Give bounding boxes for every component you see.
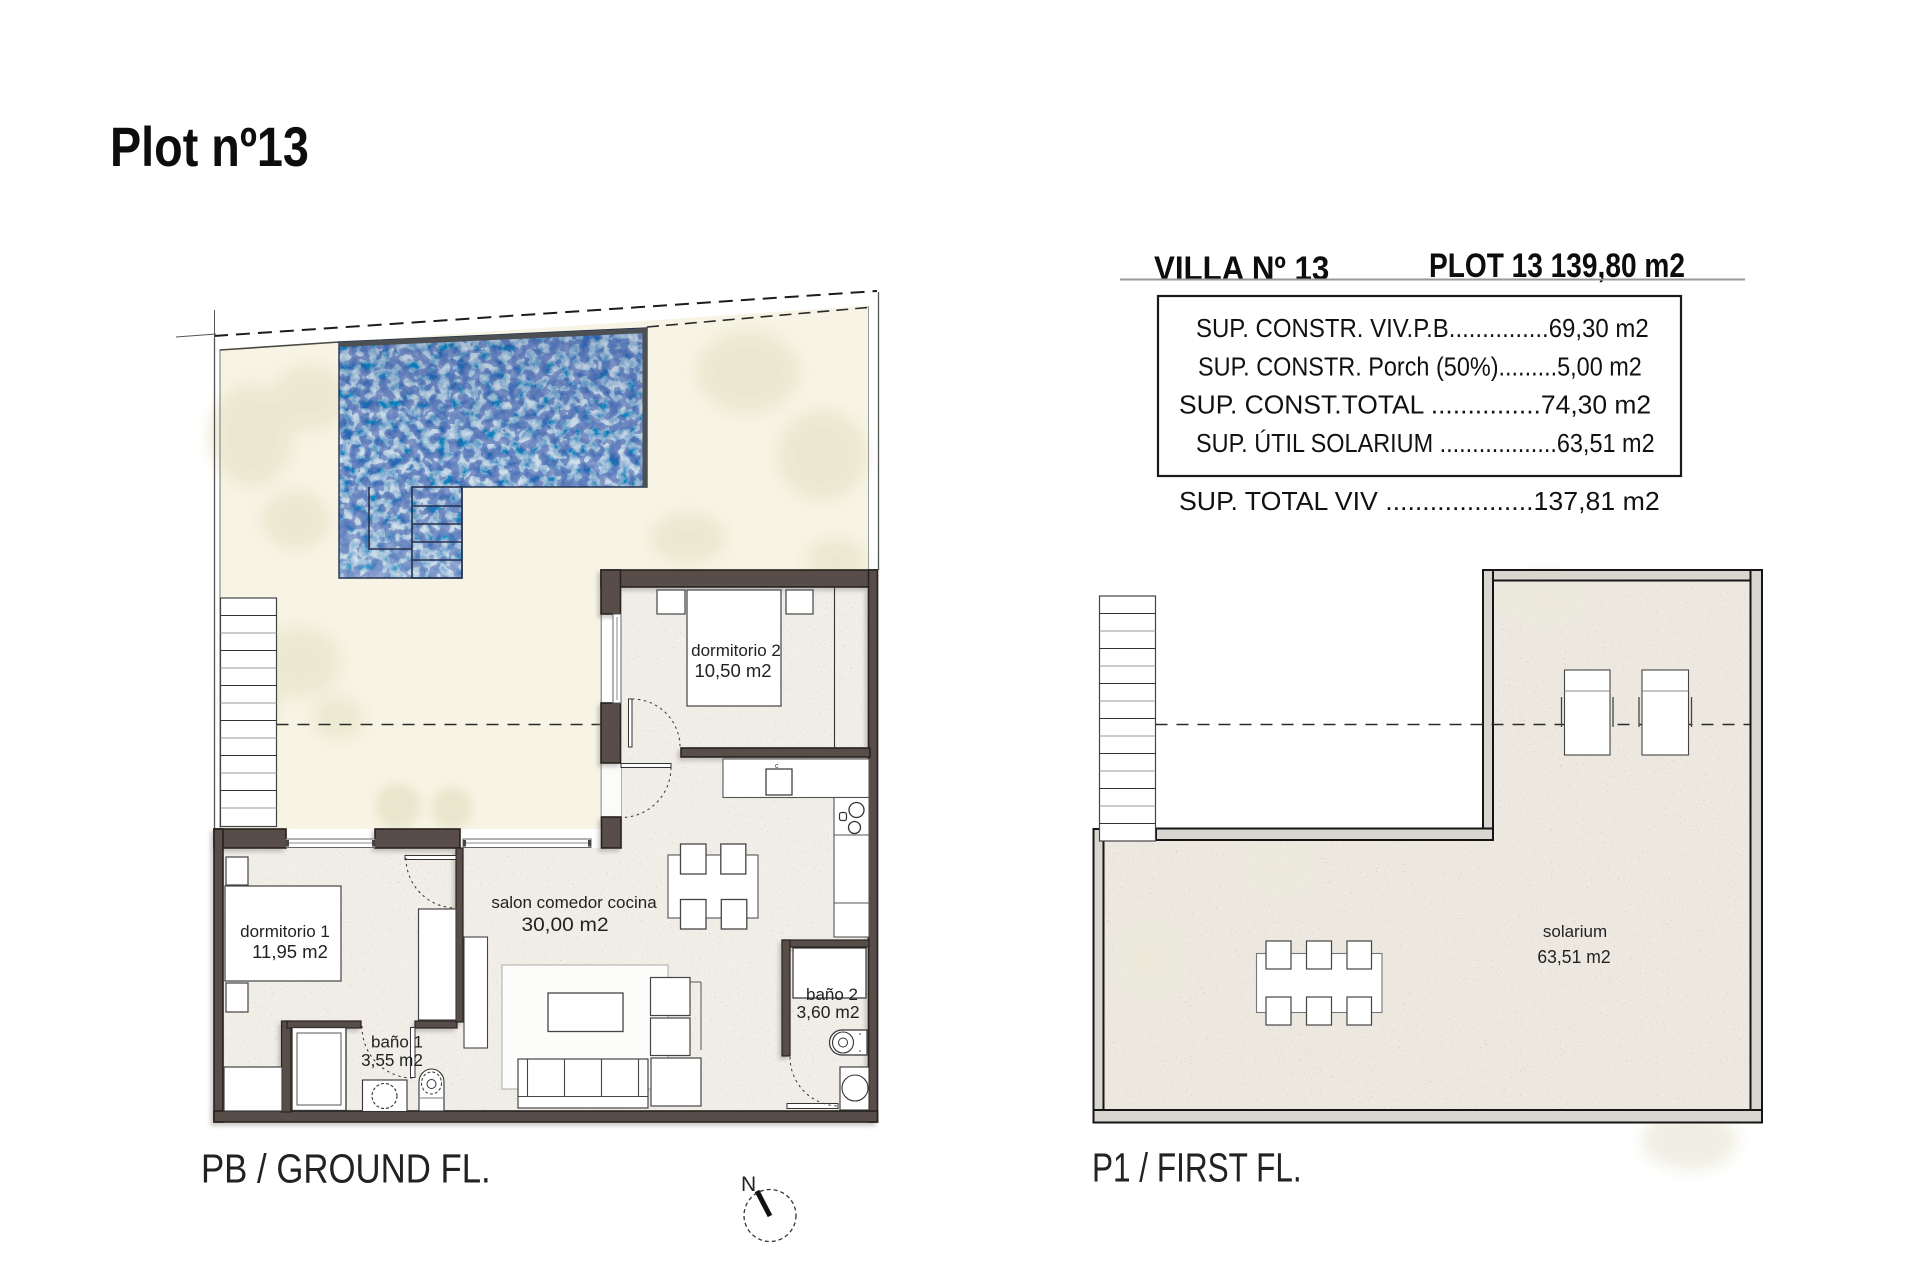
svg-text:c: c [775, 763, 779, 770]
svg-text:SUP. ÚTIL SOLARIUM ...........: SUP. ÚTIL SOLARIUM ..................63,… [1196, 430, 1655, 458]
svg-text:3,55 m2: 3,55 m2 [361, 1050, 423, 1071]
svg-text:10,50 m2: 10,50 m2 [694, 660, 771, 681]
svg-text:3,60 m2: 3,60 m2 [796, 1002, 859, 1022]
svg-text:VILLA Nº 13: VILLA Nº 13 [1154, 249, 1329, 288]
svg-text:SUP. CONSTR. VIV.P.B..........: SUP. CONSTR. VIV.P.B...............69,30… [1196, 314, 1649, 343]
svg-text:Plot nº13: Plot nº13 [110, 115, 309, 178]
svg-text:SUP. CONST.TOTAL .............: SUP. CONST.TOTAL ...............74,30 m2 [1179, 390, 1651, 420]
svg-text:salon comedor cocina: salon comedor cocina [491, 893, 657, 912]
svg-text:SUP. TOTAL VIV ...............: SUP. TOTAL VIV ....................137,8… [1179, 486, 1660, 516]
svg-text:63,51 m2: 63,51 m2 [1537, 947, 1610, 968]
svg-text:SUP. CONSTR. Porch (50%)......: SUP. CONSTR. Porch (50%).........5,00 m2 [1198, 353, 1642, 381]
svg-text:PB / GROUND FL.: PB / GROUND FL. [201, 1147, 491, 1192]
svg-text:N: N [741, 1173, 756, 1196]
svg-text:dormitorio 2: dormitorio 2 [691, 641, 781, 660]
svg-text:dormitorio 1: dormitorio 1 [240, 922, 330, 941]
svg-text:11,95 m2: 11,95 m2 [252, 941, 328, 962]
svg-text:30,00 m2: 30,00 m2 [521, 915, 608, 936]
svg-text:solarium: solarium [1543, 922, 1607, 941]
svg-text:P1 / FIRST FL.: P1 / FIRST FL. [1092, 1145, 1302, 1191]
